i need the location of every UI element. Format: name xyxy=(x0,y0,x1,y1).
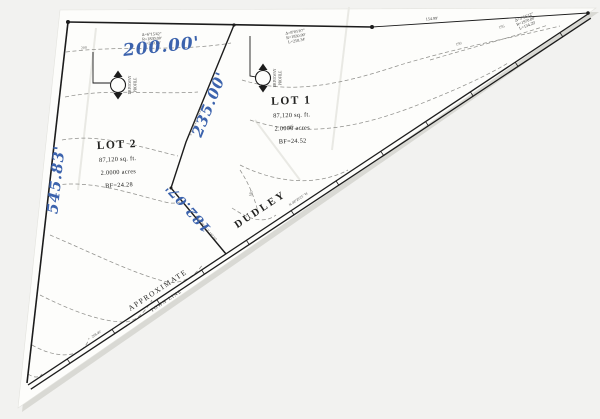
driveway-profile-label: PROFILE xyxy=(134,77,138,92)
lot1-bf-value: BF=24.52 xyxy=(279,138,307,146)
lot1-area-sqft: 87,120 sq. ft. xyxy=(273,111,311,119)
driveway-profile-label: DRIVEWAY xyxy=(128,75,132,94)
plat-drawing: 200 195 190 185 180 DRIVEWAY PROFILE xyxy=(0,0,600,419)
lot1-name: LOT 1 xyxy=(271,94,312,107)
boundary-corner-point xyxy=(66,20,70,24)
lot1-area-acres: 2.0000 acres xyxy=(274,124,310,132)
scanned-plat-page: 200 195 190 185 180 DRIVEWAY PROFILE xyxy=(0,0,600,419)
driveway-profile-label: PROFILE xyxy=(279,70,283,85)
driveway-profile-label: DRIVEWAY xyxy=(273,68,277,87)
boundary-point xyxy=(370,25,374,29)
lot2-bf-value: BF=24.28 xyxy=(105,181,133,189)
contour-label: 200 xyxy=(81,45,87,50)
lot2-name: LOT 2 xyxy=(97,138,138,152)
paper-sheet xyxy=(18,8,596,408)
